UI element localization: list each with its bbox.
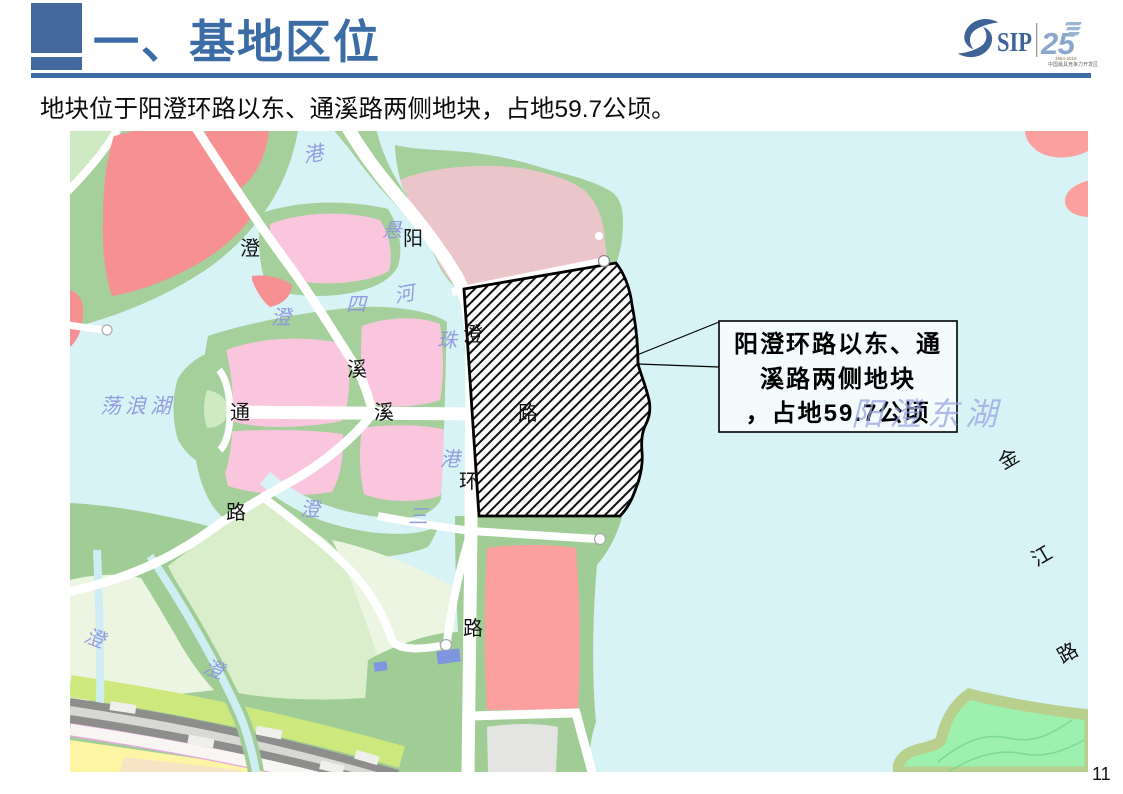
svg-text:环: 环 bbox=[459, 471, 479, 493]
svg-text:澄: 澄 bbox=[271, 307, 294, 329]
svg-text:澄: 澄 bbox=[240, 237, 260, 260]
svg-text:1994-2019: 1994-2019 bbox=[1055, 56, 1077, 61]
svg-text:中国最具竞争力开发区: 中国最具竞争力开发区 bbox=[1048, 61, 1098, 68]
svg-text:澄: 澄 bbox=[463, 323, 483, 346]
svg-text:三: 三 bbox=[408, 506, 430, 528]
svg-text:珠: 珠 bbox=[437, 330, 459, 352]
svg-text:溪路两侧地块: 溪路两侧地块 bbox=[760, 365, 916, 393]
svg-text:SIP: SIP bbox=[997, 27, 1032, 57]
svg-text:路: 路 bbox=[518, 402, 538, 425]
svg-text:路: 路 bbox=[226, 501, 246, 524]
svg-text:溪: 溪 bbox=[347, 358, 367, 381]
svg-text:阳澄东湖: 阳澄东湖 bbox=[851, 396, 1003, 432]
svg-text:澄: 澄 bbox=[300, 499, 323, 521]
svg-text:通: 通 bbox=[230, 401, 250, 424]
svg-text:悬: 悬 bbox=[382, 220, 404, 242]
svg-text:荡浪湖: 荡浪湖 bbox=[100, 394, 175, 418]
svg-text:阳澄环路以东、通: 阳澄环路以东、通 bbox=[734, 330, 942, 358]
svg-text:阳: 阳 bbox=[403, 227, 423, 250]
svg-text:港: 港 bbox=[440, 449, 463, 471]
svg-text:路: 路 bbox=[463, 617, 483, 640]
svg-text:四: 四 bbox=[346, 294, 368, 316]
svg-text:溪: 溪 bbox=[374, 401, 394, 424]
